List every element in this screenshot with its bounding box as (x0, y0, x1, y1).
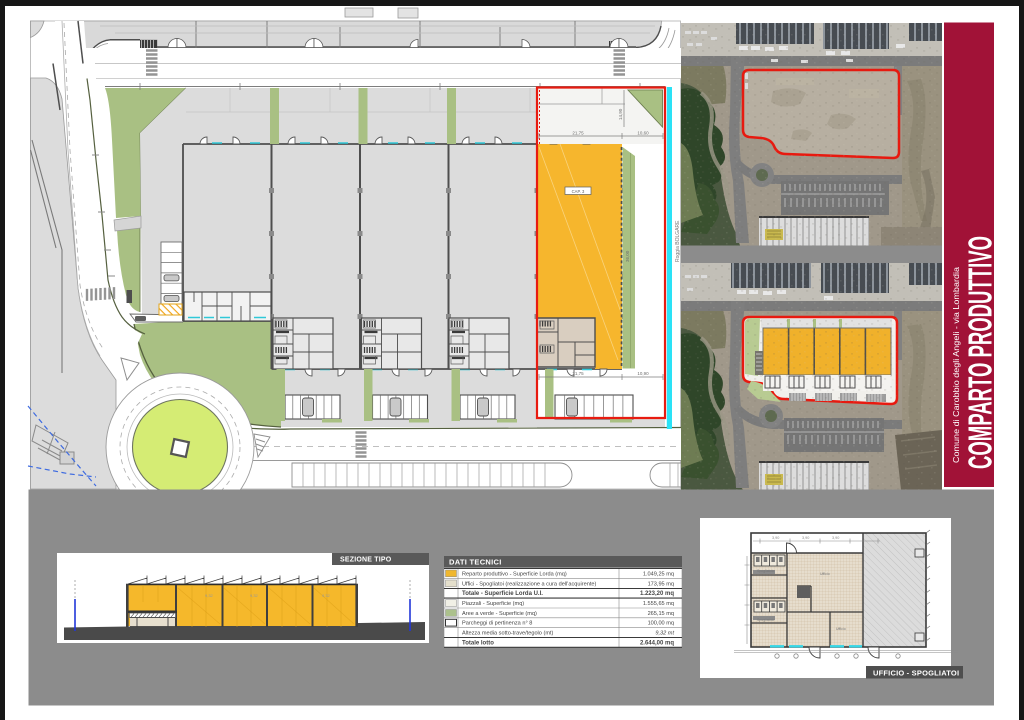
svg-text:10,60: 10,60 (637, 131, 649, 136)
svg-text:Uffici - Spogliatoi (realizza: Uffici - Spogliatoi (realizzazione a cur… (462, 581, 596, 587)
svg-text:173,95 mq: 173,95 mq (648, 581, 674, 587)
svg-text:Reparto produttivo - Superfici: Reparto produttivo - Superficie Lorda (m… (462, 572, 567, 578)
svg-text:Ufficio: Ufficio (836, 627, 846, 631)
svg-text:Piazzali - Superficie (mq): Piazzali - Superficie (mq) (462, 601, 524, 607)
svg-text:10,90: 10,90 (637, 371, 649, 376)
svg-text:DATI TECNICI: DATI TECNICI (449, 558, 502, 567)
svg-text:Parcheggi di pertinenza n° 8: Parcheggi di pertinenza n° 8 (462, 621, 532, 627)
svg-text:21,75: 21,75 (572, 371, 584, 376)
svg-text:SEZIONE TIPO: SEZIONE TIPO (340, 557, 392, 564)
svg-text:CAP. 3: CAP. 3 (572, 189, 585, 194)
svg-text:21,75: 21,75 (572, 131, 584, 136)
svg-text:Altezza media sotto-trave/tego: Altezza media sotto-trave/tegolo (mt) (462, 630, 554, 636)
svg-text:1.223,20 mq: 1.223,20 mq (640, 591, 674, 597)
svg-text:9,32: 9,32 (250, 593, 259, 598)
svg-text:COMPARTO PRODUTTIVO: COMPARTO PRODUTTIVO (962, 236, 999, 469)
svg-text:Roggia BOLGARE: Roggia BOLGARE (675, 220, 681, 262)
svg-text:Spogliatoio: Spogliatoio (757, 618, 774, 622)
svg-text:1.049,25 mq: 1.049,25 mq (643, 572, 674, 578)
svg-text:Ufficio: Ufficio (820, 572, 830, 576)
svg-text:14,90: 14,90 (618, 108, 623, 120)
svg-text:1.555,65 mq: 1.555,65 mq (643, 601, 674, 607)
svg-text:Aree a verde - Superficie (mq): Aree a verde - Superficie (mq) (462, 611, 537, 617)
svg-text:9,32 mt: 9,32 mt (655, 630, 674, 636)
svg-text:9,32: 9,32 (205, 593, 214, 598)
svg-text:3,90: 3,90 (832, 536, 839, 540)
svg-text:100,00 mq: 100,00 mq (648, 621, 674, 627)
svg-text:36,00: 36,00 (625, 250, 630, 262)
svg-text:265,15 mq: 265,15 mq (648, 611, 674, 617)
svg-text:3,90: 3,90 (802, 536, 809, 540)
svg-text:Totale lotto: Totale lotto (462, 640, 494, 646)
svg-text:3,90: 3,90 (772, 536, 779, 540)
svg-text:Comune di Carobbio degli Angel: Comune di Carobbio degli Angeli - via Lo… (951, 267, 961, 463)
svg-text:2.644,00 mq: 2.644,00 mq (640, 640, 674, 646)
svg-text:Totale - Superficie Lorda U.I.: Totale - Superficie Lorda U.I. (462, 591, 543, 597)
svg-text:9,32: 9,32 (322, 593, 331, 598)
svg-text:Spogliatoio: Spogliatoio (757, 569, 774, 573)
svg-text:UFFICIO - SPOGLIATOI: UFFICIO - SPOGLIATOI (873, 669, 959, 678)
